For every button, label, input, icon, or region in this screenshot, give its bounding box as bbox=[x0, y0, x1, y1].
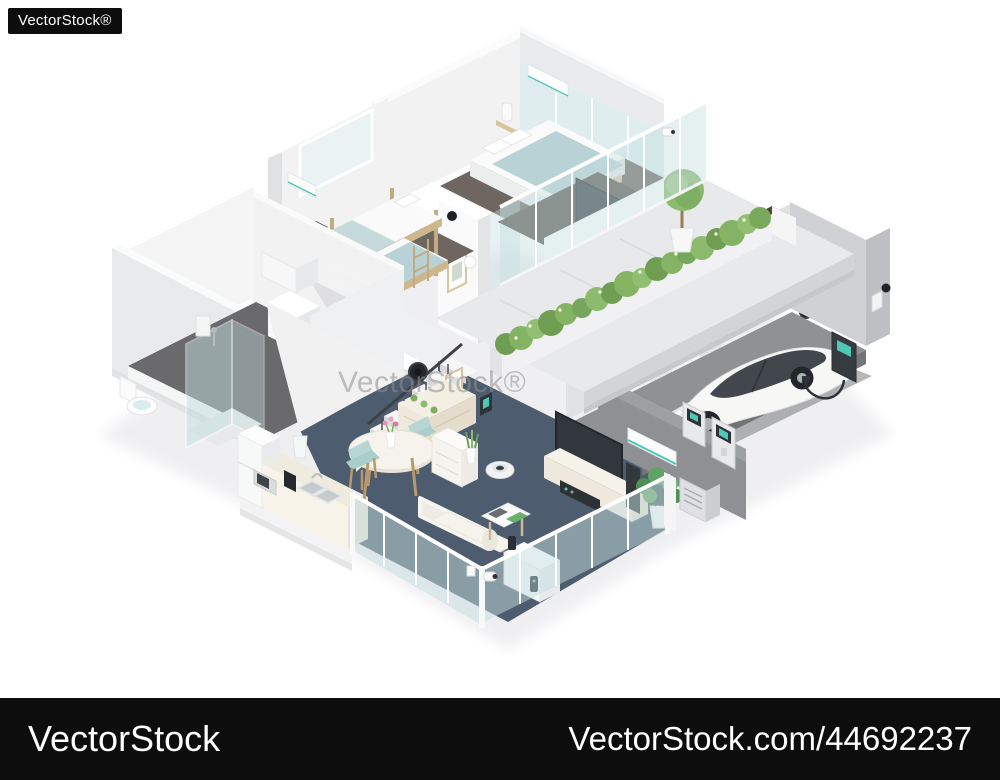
watermark-brand: VectorStock bbox=[28, 698, 220, 780]
robot-vacuum bbox=[486, 462, 514, 479]
trash-bin bbox=[293, 436, 307, 458]
vectorstock-logo-badge: VectorStock® bbox=[8, 8, 122, 34]
stock-image-page: VectorStock® VectorStock® VectorStock Ve… bbox=[0, 0, 1000, 780]
outdoor-camera-icon bbox=[882, 284, 891, 293]
bottom-watermark-bar: VectorStock VectorStock.com/44692237 bbox=[0, 698, 1000, 780]
security-camera-entrance bbox=[484, 572, 498, 581]
security-camera-terrace bbox=[662, 128, 675, 136]
center-watermark: VectorStock® bbox=[338, 366, 526, 400]
wall-socket-icon bbox=[467, 566, 475, 576]
indoor-camera-icon bbox=[447, 211, 457, 221]
smart-sensor-icon bbox=[464, 256, 476, 268]
bathroom-mirror bbox=[196, 316, 210, 336]
black-cylinder-device bbox=[508, 536, 516, 550]
watermark-image-url: VectorStock.com/44692237 bbox=[568, 698, 972, 780]
